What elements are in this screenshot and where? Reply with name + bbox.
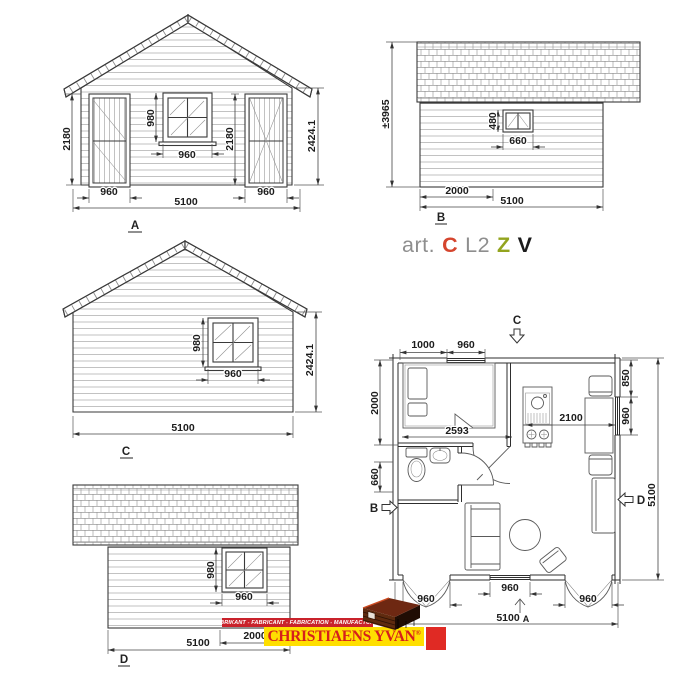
view-label-c: C [122,446,130,458]
side-elevation-b: 480 660 ±3965 2000 5100 B [370,13,695,228]
dim-top-window: 960 [457,339,475,351]
cabin-illustration [362,597,428,632]
view-label-d: D [120,654,128,666]
svg-text:C: C [513,315,521,327]
dim-height-total: 2424.1 [304,344,316,376]
drawing-sheet: 2180 980 2180 2424.1 960 960 960 5100 [0,0,700,700]
side-window [222,548,267,592]
dim-bedroom-depth: 2000 [369,391,381,415]
round-table [510,520,541,551]
dim-window-height: 480 [487,112,499,130]
dim-height-inner: 2180 [224,127,236,151]
dim-living-width: 2100 [559,412,583,424]
roof [417,42,640,102]
bench [592,478,615,533]
svg-text:B: B [370,503,378,515]
section-marker-c: C [510,315,524,343]
kitchen-unit [523,387,552,447]
dim-window-width: 960 [178,149,196,161]
article-code: art. C L2 Z V [402,233,533,258]
bed [403,363,495,428]
dining-table [585,376,613,475]
front-door-right [245,94,287,187]
roof [73,485,298,545]
art-code-c: C [442,233,458,258]
bottom-window [490,576,530,580]
dim-window-height: 980 [191,334,203,352]
logo-banner: FABRIKANT - FABRICANT - FABRICATION - MA… [222,618,373,627]
top-window [447,359,485,363]
manufacturer-logo: FABRIKANT - FABRICANT - FABRICATION - MA… [190,592,448,658]
section-marker-d: D [618,493,645,507]
art-prefix: art. [402,233,435,258]
toilet [406,448,427,482]
dim-height-left: 2180 [61,127,73,151]
dim-bedroom-width: 2593 [445,425,469,437]
front-door-left [89,94,130,187]
dim-height-total: ±3965 [380,99,392,128]
svg-text:D: D [637,495,645,507]
side-window [503,110,533,132]
front-elevation-a: 2180 980 2180 2424.1 960 960 960 5100 [55,8,345,238]
dim-right-offset: 850 [620,369,632,387]
dim-window-height: 980 [205,561,217,579]
right-window [616,397,620,435]
dim-height-total: 2424.1 [306,120,318,152]
dim-door-left: 960 [100,186,118,198]
dim-window-height: 980 [145,109,157,127]
dim-width-total: 5100 [174,196,198,208]
logo-red-square [426,627,446,650]
dim-right-window: 960 [620,407,632,425]
dim-window-width: 960 [224,368,242,380]
rear-window [205,318,261,371]
sofa [465,503,500,570]
entrance-arrow [515,599,525,613]
dim-width-total: 5100 [500,195,524,207]
dim-window-width: 660 [509,135,527,147]
view-label-b: B [437,212,445,224]
chair [539,546,568,573]
dim-offset: 2000 [445,185,469,197]
section-label-a: A [523,614,530,624]
rear-wall [73,247,293,412]
dim-bath-door: 660 [369,468,381,486]
dim-top-offset: 1000 [411,339,435,351]
dim-side-total: 5100 [646,483,658,507]
dim-width-total: 5100 [171,422,195,434]
wash-basin [430,448,450,463]
logo-banner-text: FABRIKANT - FABRICANT - FABRICATION - MA… [222,620,373,626]
rear-elevation-c: 980 960 2424.1 5100 C [40,238,345,463]
view-label-a: A [131,220,139,232]
dim-door-right: 960 [257,186,275,198]
front-window [159,93,216,146]
art-code-v: V [518,233,533,258]
dim-bottom-window: 960 [501,582,519,594]
art-code-z: Z [497,233,511,258]
art-code-l2: L2 [465,233,490,258]
dim-door-right: 960 [579,593,597,605]
bathroom-door [462,453,494,485]
dim-bottom-total: 5100 [496,612,520,624]
